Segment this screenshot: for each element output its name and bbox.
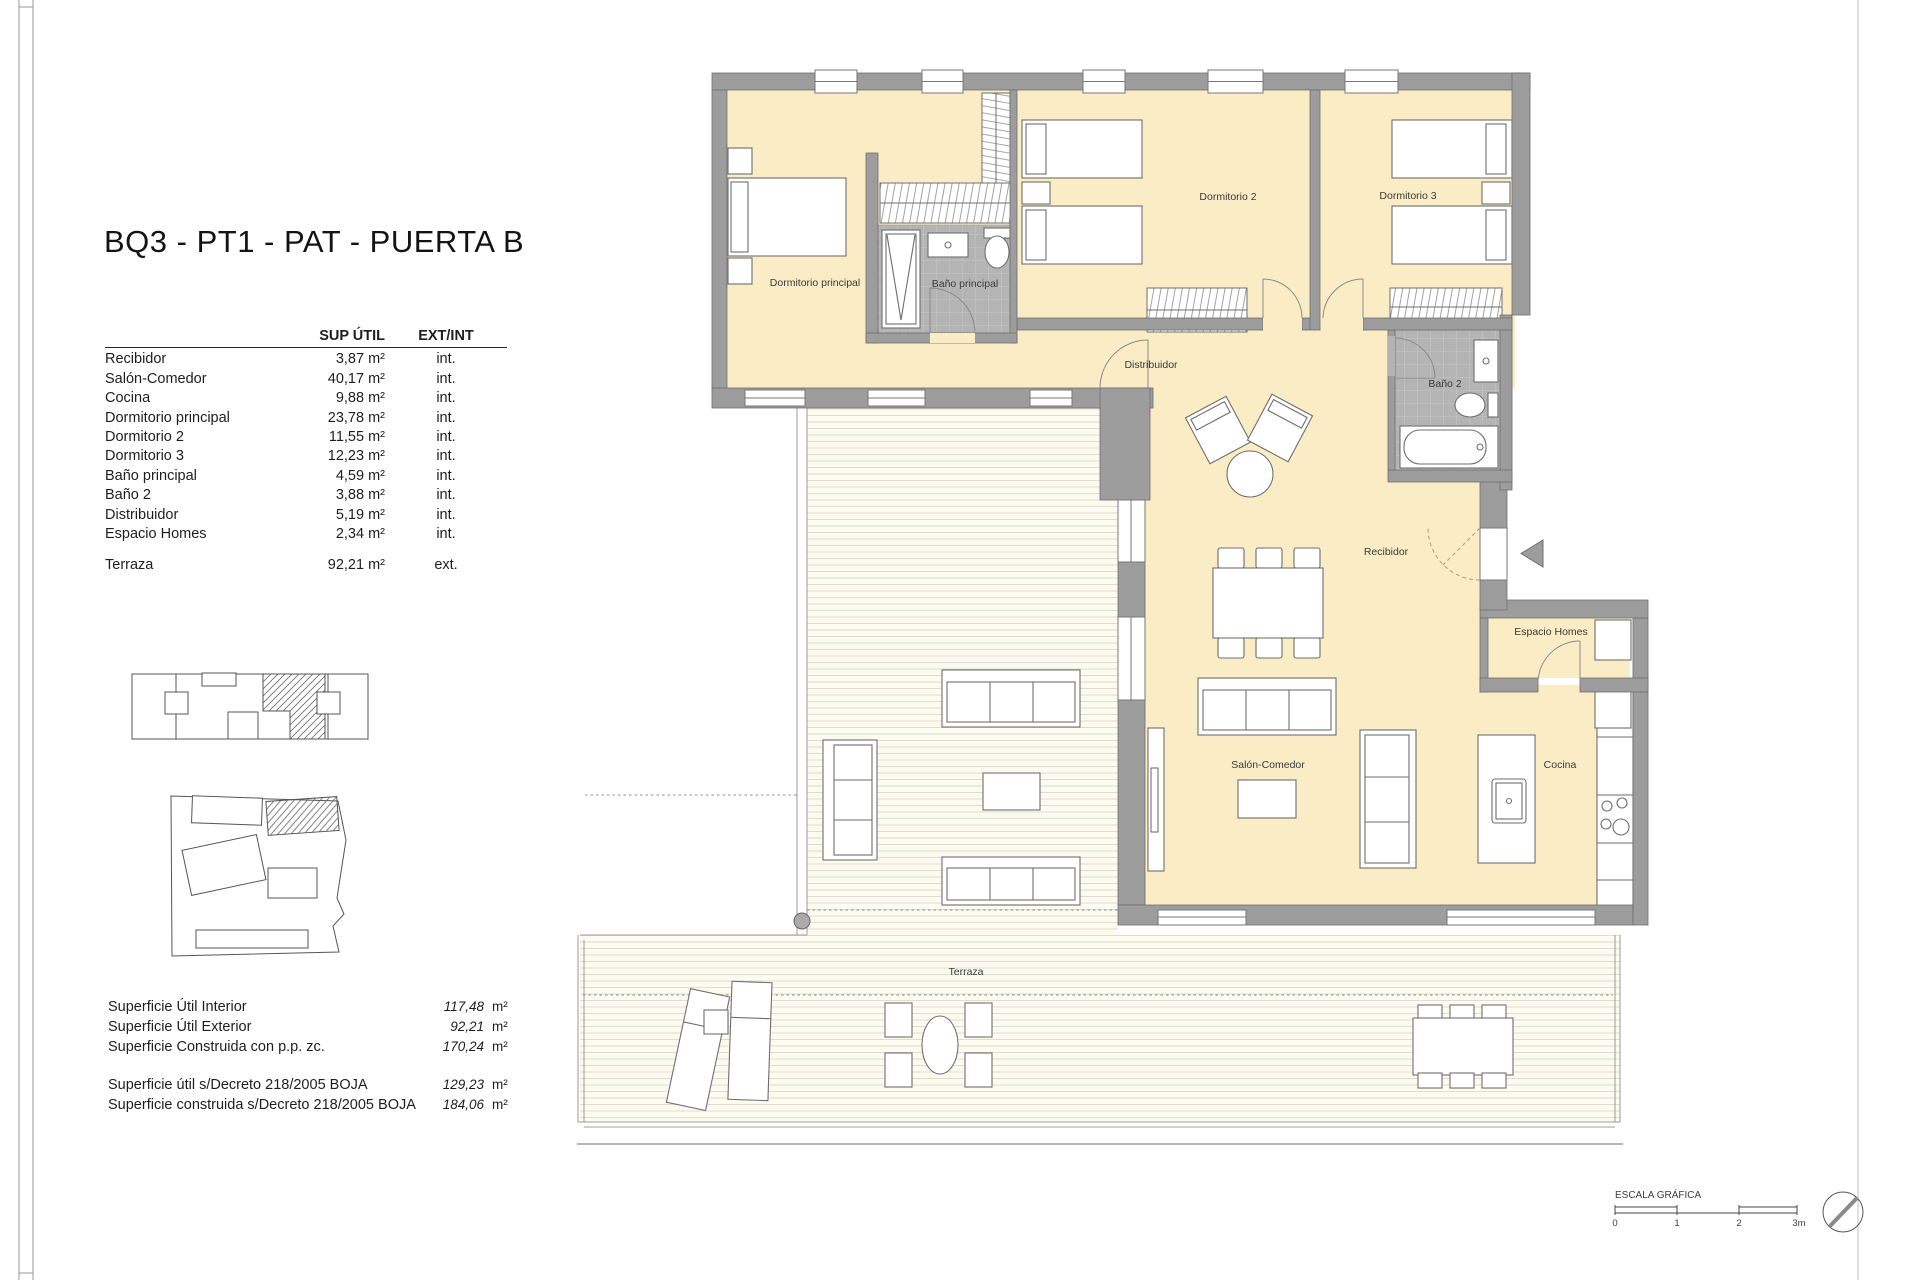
room-label-cocina: Cocina [1544,759,1577,771]
scale-bar-title: ESCALA GRÁFICA [1615,1190,1701,1201]
room-label-recibidor: Recibidor [1364,546,1408,558]
scale-tick: 1 [1674,1218,1679,1229]
entry-arrow-icon [1521,540,1543,567]
room-label-salon-comedor: Salón-Comedor [1231,759,1305,771]
col-ext-int: EXT/INT [385,327,507,346]
area-table-header: SUP ÚTIL EXT/INT [105,327,507,348]
scale-tick: 0 [1612,1218,1617,1229]
site-plan [171,796,346,956]
room-label-terraza: Terraza [948,966,983,978]
table-row: Distribuidor5,19 m²int. [105,506,507,525]
column [794,913,810,929]
table-row: Salón-Comedor40,17 m²int. [105,370,507,389]
room-label-dormitorio-3: Dormitorio 3 [1379,190,1436,202]
scale-bar [1615,1205,1797,1215]
page-title: BQ3 - PT1 - PAT - PUERTA B [104,224,524,260]
north-arrow-icon [1823,1192,1863,1232]
col-sup-util: SUP ÚTIL [257,327,385,346]
summary-row: Superficie Útil Interior117,48m² [108,997,522,1017]
summary-row: Superficie construida s/Decreto 218/2005… [108,1095,522,1115]
dining-table-symbol [1213,548,1323,658]
surface-summary: Superficie Útil Interior117,48m² Superfi… [108,997,522,1115]
entry-opening [1480,528,1507,580]
table-row: Baño principal4,59 m²int. [105,467,507,486]
scale-tick: 2 [1736,1218,1741,1229]
room-label-bano-principal: Baño principal [932,278,999,290]
table-row: Dormitorio 312,23 m²int. [105,447,507,466]
table-row: Cocina9,88 m²int. [105,389,507,408]
table-row: Espacio Homes2,34 m²int. [105,525,507,544]
room-label-dormitorio-2: Dormitorio 2 [1199,191,1256,203]
table-row: Baño 23,88 m²int. [105,486,507,505]
table-row: Dormitorio 211,55 m²int. [105,428,507,447]
summary-row: Superficie Construida con p.p. zc.170,24… [108,1037,522,1057]
table-row-terraza: Terraza92,21 m²ext. [105,556,507,575]
summary-row: Superficie útil s/Decreto 218/2005 BOJA1… [108,1075,522,1095]
room-label-bano-2: Baño 2 [1428,378,1461,390]
room-label-distribuidor: Distribuidor [1124,359,1177,371]
scale-tick: 3m [1792,1218,1805,1229]
room-label-dormitorio-principal: Dormitorio principal [770,277,860,289]
area-table: SUP ÚTIL EXT/INT Recibidor3,87 m²int. Sa… [105,327,507,576]
summary-row: Superficie Útil Exterior92,21m² [108,1017,522,1037]
room-label-espacio-homes: Espacio Homes [1514,626,1588,638]
table-row: Dormitorio principal23,78 m²int. [105,409,507,428]
drawing-sheet: BQ3 - PT1 - PAT - PUERTA B SUP ÚTIL EXT/… [0,0,1920,1280]
table-row: Recibidor3,87 m²int. [105,350,507,369]
key-plan-building [132,673,368,739]
